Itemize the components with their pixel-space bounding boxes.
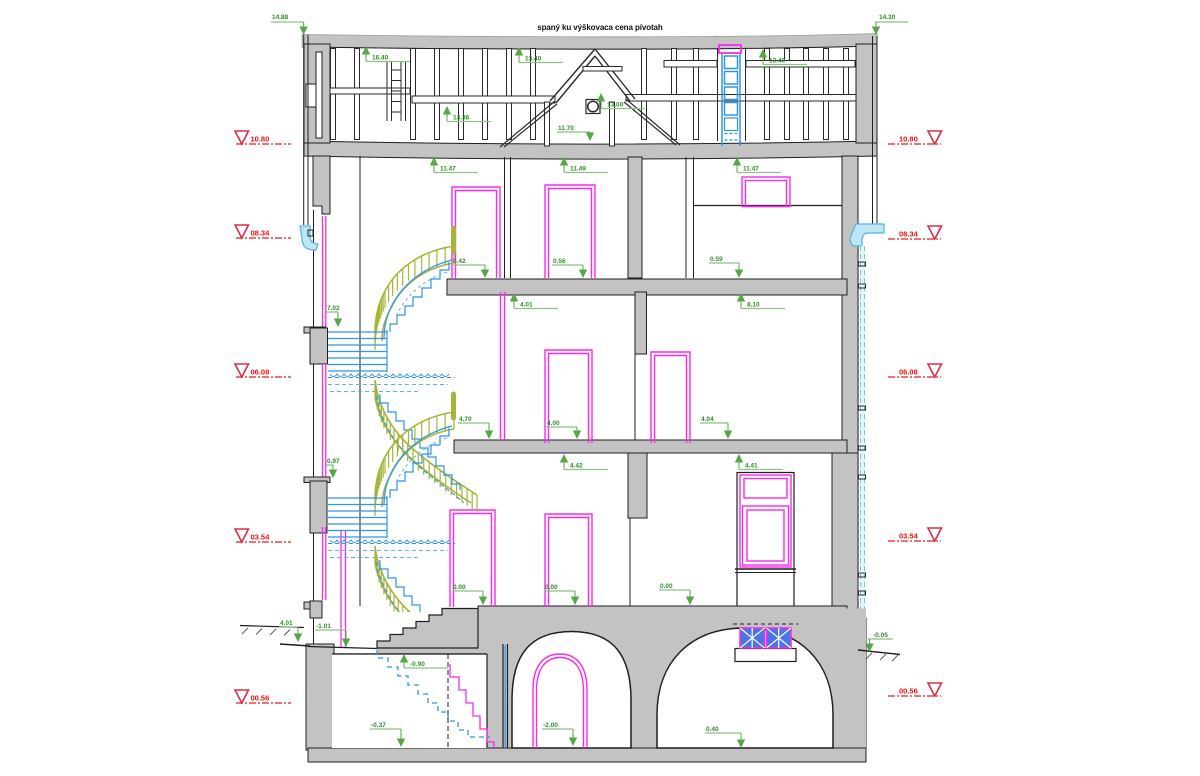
svg-text:13.36: 13.36: [453, 115, 470, 122]
svg-text:-2.00: -2.00: [543, 722, 558, 729]
svg-text:11.47: 11.47: [743, 166, 759, 173]
svg-text:8.10: 8.10: [747, 302, 760, 309]
svg-text:00.56: 00.56: [899, 687, 918, 696]
svg-text:06.08: 06.08: [251, 368, 270, 377]
svg-text:4.01: 4.01: [520, 302, 533, 309]
svg-text:13.40: 13.40: [525, 56, 542, 63]
svg-text:00.56: 00.56: [251, 694, 270, 703]
svg-text:13.00: 13.00: [607, 102, 624, 109]
svg-text:0.59: 0.59: [710, 256, 723, 263]
svg-text:0.00: 0.00: [453, 584, 466, 591]
svg-text:4.41: 4.41: [745, 463, 758, 470]
svg-text:-0.05: -0.05: [873, 632, 888, 639]
svg-text:13.40: 13.40: [769, 58, 786, 65]
svg-text:14.88: 14.88: [272, 14, 289, 21]
svg-text:0.00: 0.00: [660, 583, 673, 590]
svg-text:spaný ku výškovaca cena pívota: spaný ku výškovaca cena pívotah: [537, 23, 663, 32]
svg-text:06.08: 06.08: [899, 368, 918, 377]
svg-text:-0.37: -0.37: [371, 722, 386, 729]
svg-text:7.02: 7.02: [327, 305, 340, 312]
svg-text:-0.90: -0.90: [410, 661, 425, 668]
svg-text:14.30: 14.30: [879, 14, 896, 21]
svg-text:11.70: 11.70: [558, 125, 574, 132]
svg-text:0.56: 0.56: [553, 258, 566, 265]
svg-text:08.34: 08.34: [899, 230, 919, 239]
svg-text:4.00: 4.00: [547, 420, 560, 427]
svg-text:03.54: 03.54: [899, 532, 919, 541]
svg-text:08.34: 08.34: [251, 229, 271, 238]
svg-text:11.49: 11.49: [570, 166, 586, 173]
svg-text:4.01: 4.01: [280, 620, 293, 627]
svg-text:0.40: 0.40: [706, 726, 719, 733]
svg-text:4.70: 4.70: [459, 416, 472, 423]
svg-text:0.42: 0.42: [453, 258, 466, 265]
svg-text:16.40: 16.40: [372, 55, 389, 62]
svg-text:10.80: 10.80: [899, 135, 918, 144]
svg-text:0.97: 0.97: [327, 458, 340, 465]
svg-text:10.80: 10.80: [251, 135, 270, 144]
svg-text:-1.01: -1.01: [316, 623, 331, 630]
svg-text:03.54: 03.54: [251, 533, 271, 542]
svg-text:0.00: 0.00: [545, 584, 558, 591]
svg-text:4.04: 4.04: [701, 416, 714, 423]
svg-text:4.42: 4.42: [570, 463, 583, 470]
svg-text:11.47: 11.47: [440, 166, 456, 173]
